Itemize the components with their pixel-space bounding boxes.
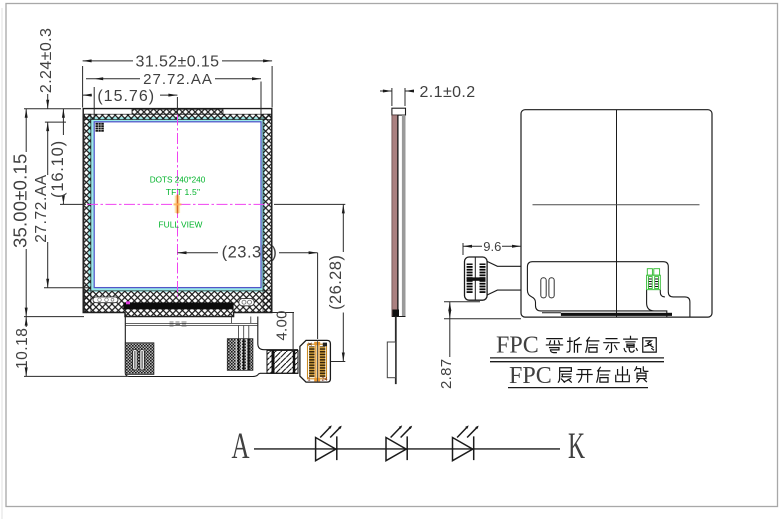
svg-text:10.18: 10.18 [14, 328, 31, 369]
svg-text:FULL VIEW: FULL VIEW [159, 220, 203, 230]
svg-text:27.72.AA: 27.72.AA [143, 71, 213, 88]
svg-text:FPC: FPC [509, 363, 552, 389]
svg-text:31.52±0.15: 31.52±0.15 [136, 54, 220, 71]
svg-text:2.24±0.3: 2.24±0.3 [38, 28, 55, 93]
svg-text:27.72.AA: 27.72.AA [33, 174, 50, 243]
svg-text:K: K [568, 426, 585, 467]
svg-text:TFT 1.5": TFT 1.5" [166, 187, 201, 197]
svg-text:9.6: 9.6 [483, 239, 501, 254]
svg-text:A: A [232, 426, 250, 467]
svg-text:1: 1 [308, 377, 311, 383]
svg-text:4.00: 4.00 [274, 310, 291, 340]
svg-text:35.00±0.15: 35.00±0.15 [10, 154, 31, 248]
svg-text:(26.28): (26.28) [327, 255, 345, 310]
svg-text:2.1±0.2: 2.1±0.2 [420, 84, 476, 101]
svg-text:(15.76): (15.76) [97, 88, 155, 105]
svg-text:24: 24 [322, 377, 328, 383]
svg-text:DOTS 240*240: DOTS 240*240 [150, 176, 206, 185]
svg-text:(16.10): (16.10) [49, 140, 67, 198]
svg-text:2.87: 2.87 [438, 359, 455, 389]
svg-text:FPC: FPC [496, 333, 539, 359]
